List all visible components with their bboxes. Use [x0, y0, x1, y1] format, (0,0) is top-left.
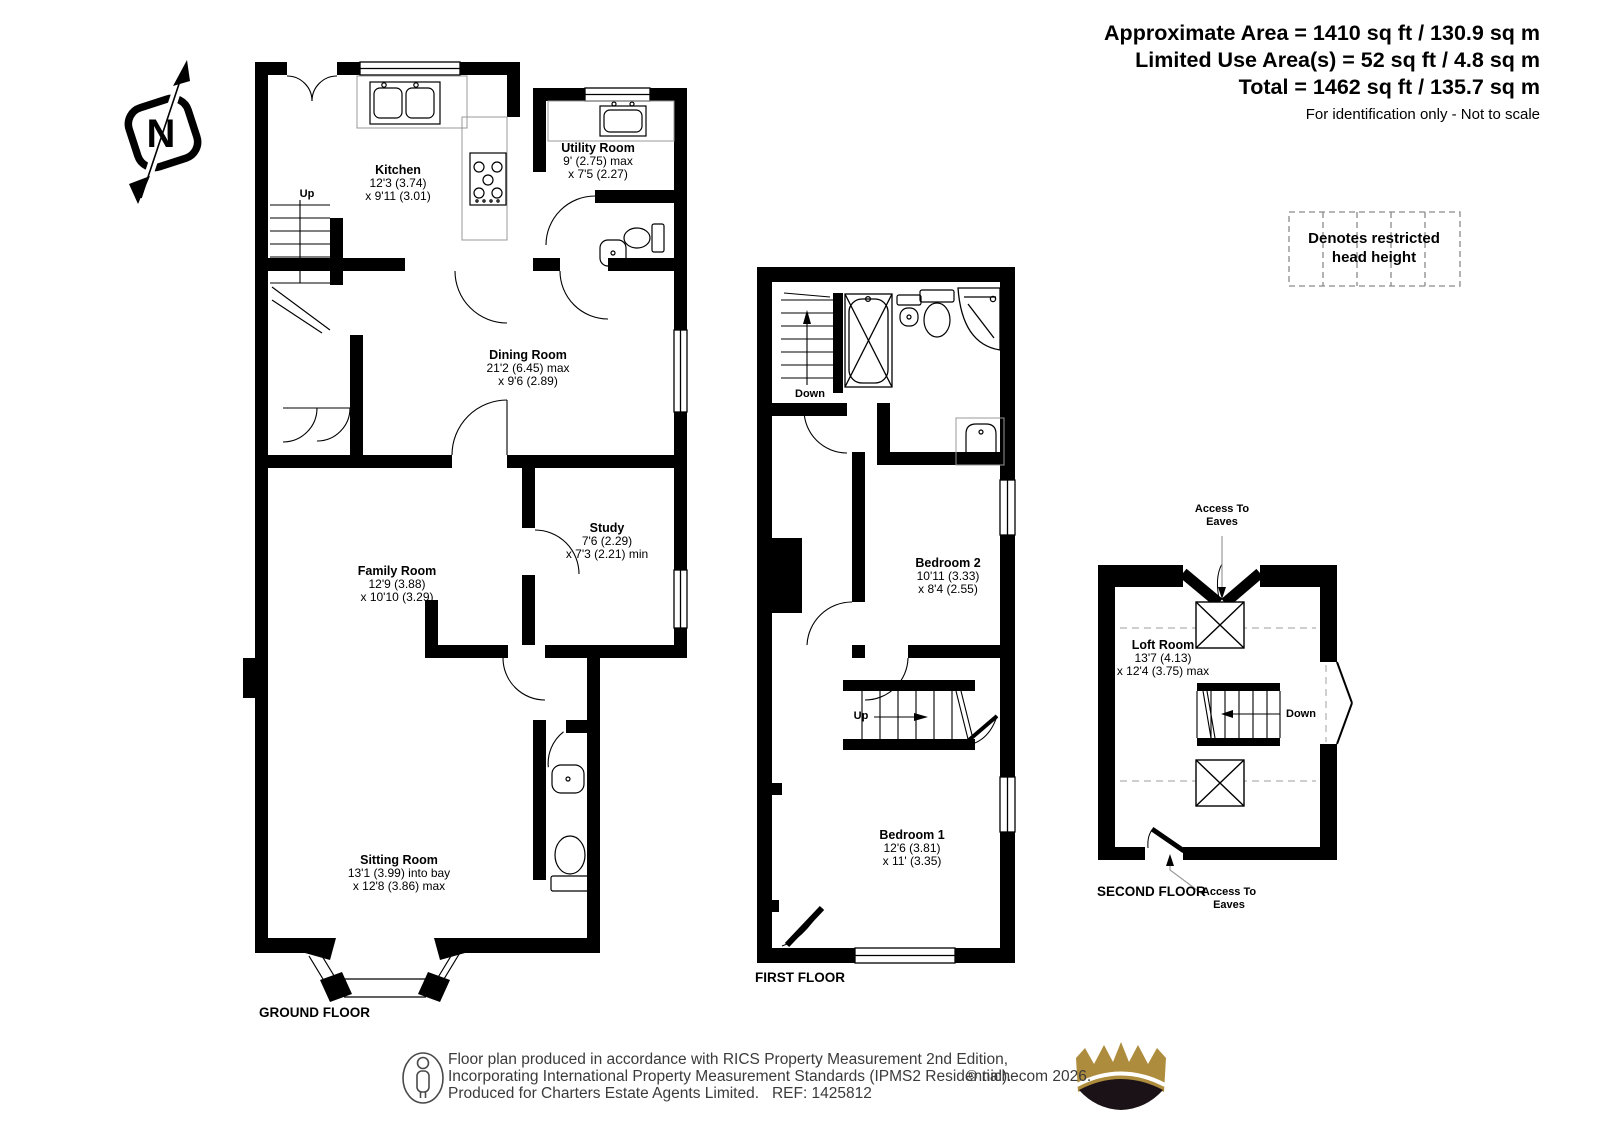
footer-line3: Produced for Charters Estate Agents Limi…	[448, 1085, 872, 1103]
area-summary: Approximate Area = 1410 sq ft / 130.9 sq…	[1104, 20, 1540, 123]
cloakroom-toilet-icon	[551, 836, 589, 891]
person-icon	[403, 1053, 443, 1103]
kitchen-sink-icon	[370, 82, 440, 124]
room-label-bedroom1: Bedroom 1 12'6 (3.81) x 11' (3.35)	[879, 829, 944, 868]
legend-line2: head height	[1308, 248, 1440, 267]
room-label-study: Study 7'6 (2.29) x 7'3 (2.21) min	[566, 522, 648, 561]
total-area: Total = 1462 sq ft / 135.7 sq m	[1104, 74, 1540, 101]
hob-icon	[470, 153, 506, 205]
legend-line1: Denotes restricted	[1308, 229, 1440, 248]
compass-letter: N	[147, 112, 176, 156]
ground-floor-label: GROUND FLOOR	[259, 1005, 370, 1020]
access-bottom-arrowhead	[1166, 854, 1174, 866]
approximate-area: Approximate Area = 1410 sq ft / 130.9 sq…	[1104, 20, 1540, 47]
room-label-kitchen: Kitchen 12'3 (3.74) x 9'11 (3.01)	[365, 164, 430, 203]
loft-stairs	[1197, 683, 1280, 746]
up-arrowhead	[914, 713, 928, 721]
room-label-dining: Dining Room 21'2 (6.45) max x 9'6 (2.89)	[487, 349, 570, 388]
eaves-wall-right	[1225, 573, 1260, 603]
eaves-wall-left	[1183, 573, 1219, 603]
room-label-loft: Loft Room 13'7 (4.13) x 12'4 (3.75) max	[1117, 639, 1209, 678]
ground-door-arcs	[283, 76, 608, 767]
bedroom1-cupboard	[787, 908, 822, 945]
floorplan-page: N	[0, 0, 1600, 1131]
bidet-icon	[897, 295, 921, 326]
down-arrowhead	[803, 310, 811, 324]
footer-copyright: © nichecom 2026.	[966, 1068, 1091, 1086]
footer-line2: Incorporating International Property Mea…	[448, 1068, 1011, 1086]
legend-text: Denotes restricted head height	[1308, 229, 1440, 267]
second-down-label: Down	[1286, 708, 1316, 720]
limited-use-area: Limited Use Area(s) = 52 sq ft / 4.8 sq …	[1104, 47, 1540, 74]
room-label-sitting: Sitting Room 13'1 (3.99) into bay x 12'8…	[348, 854, 450, 893]
access-to-eaves-top: Access To Eaves	[1186, 503, 1258, 528]
room-label-family: Family Room 12'9 (3.88) x 10'10 (3.29)	[358, 565, 437, 604]
bedroom1-door-leaf	[962, 716, 997, 746]
toilet-icon	[920, 290, 954, 337]
eaves-door-leaf	[1152, 829, 1184, 851]
utility-sink-icon	[600, 102, 646, 136]
identification-note: For identification only - Not to scale	[1104, 106, 1540, 123]
first-down-label: Down	[795, 388, 825, 400]
room-label-bedroom2: Bedroom 2 10'11 (3.33) x 8'4 (2.55)	[915, 557, 980, 596]
first-up-label: Up	[854, 710, 869, 722]
wc-toilet-icon	[624, 224, 664, 252]
ground-up-label: Up	[300, 188, 315, 200]
north-compass-icon: N	[124, 60, 202, 204]
bath-icon	[845, 294, 892, 387]
floorplan-graphics: N	[0, 0, 1600, 1131]
room-label-utility: Utility Room 9' (2.75) max x 7'5 (2.27)	[561, 142, 635, 181]
eaves-chevron	[1337, 662, 1352, 744]
second-floor-label: SECOND FLOOR	[1097, 884, 1206, 899]
skylight-icons	[1196, 602, 1244, 806]
cloakroom-sink-icon	[552, 765, 584, 793]
footer-line1: Floor plan produced in accordance with R…	[448, 1051, 1008, 1069]
first-stairs-down	[781, 293, 833, 385]
shower-icon	[958, 288, 1000, 350]
first-floor-label: FIRST FLOOR	[755, 970, 845, 985]
